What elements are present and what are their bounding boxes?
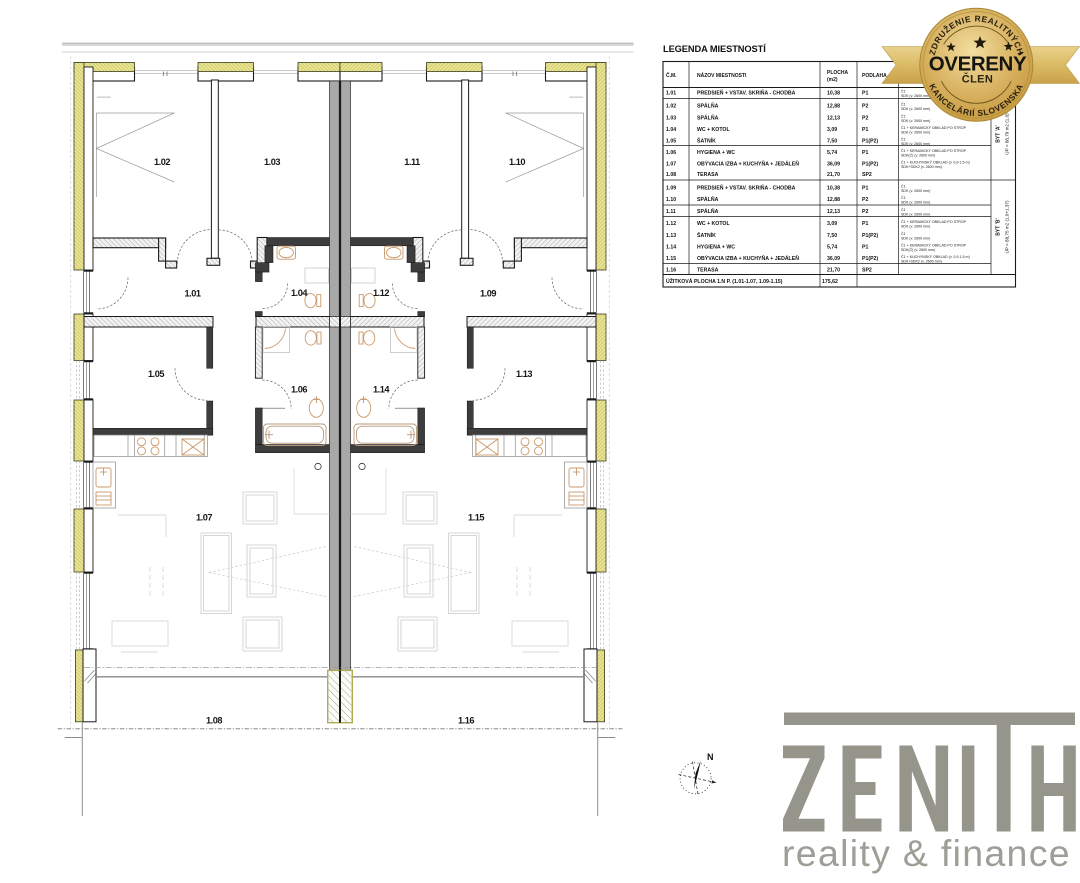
svg-text:1.14: 1.14 bbox=[666, 245, 676, 251]
svg-text:1.15: 1.15 bbox=[666, 256, 676, 262]
svg-text:ÚP = 88,79 m2 (1.0): ÚP = 88,79 m2 (1.0) bbox=[1004, 113, 1010, 155]
svg-text:1.06: 1.06 bbox=[291, 385, 307, 395]
svg-text:10,38: 10,38 bbox=[827, 185, 840, 191]
svg-text:1.04: 1.04 bbox=[291, 288, 308, 298]
svg-text:3,09: 3,09 bbox=[827, 127, 837, 133]
svg-text:Č1: Č1 bbox=[901, 195, 906, 200]
svg-text:ŠATNÍK: ŠATNÍK bbox=[697, 136, 716, 144]
svg-text:1.09: 1.09 bbox=[666, 185, 676, 191]
svg-text:21,70: 21,70 bbox=[827, 268, 840, 274]
svg-text:P1: P1 bbox=[862, 221, 868, 227]
svg-text:P2: P2 bbox=[862, 197, 868, 203]
svg-text:P1: P1 bbox=[862, 91, 868, 97]
svg-text:5,74: 5,74 bbox=[827, 150, 837, 156]
svg-text:36,09: 36,09 bbox=[827, 256, 840, 262]
svg-text:P1(P2): P1(P2) bbox=[862, 161, 878, 167]
svg-text:1.08: 1.08 bbox=[666, 172, 676, 178]
svg-text:SP2: SP2 bbox=[862, 172, 872, 178]
svg-text:BYT 'B': BYT 'B' bbox=[996, 218, 1002, 235]
svg-text:P2: P2 bbox=[862, 115, 868, 121]
svg-text:10,38: 10,38 bbox=[827, 91, 840, 97]
svg-text:SDK (v. 2600 mm): SDK (v. 2600 mm) bbox=[901, 107, 930, 111]
svg-text:TERASA: TERASA bbox=[697, 172, 719, 178]
svg-text:1.01: 1.01 bbox=[666, 91, 676, 97]
svg-text:SDK(Č) (v. 2600 mm): SDK(Č) (v. 2600 mm) bbox=[901, 152, 935, 157]
svg-text:SDK (v. 2600 mm): SDK (v. 2600 mm) bbox=[901, 94, 930, 98]
svg-text:Č1: Č1 bbox=[901, 183, 906, 188]
svg-text:Č1 + KUCHYNSKÝ OBKLAD (v. 0,9-: Č1 + KUCHYNSKÝ OBKLAD (v. 0,9-1,5 m) bbox=[901, 159, 970, 164]
svg-text:SDK (v. 2600 mm): SDK (v. 2600 mm) bbox=[901, 213, 930, 217]
svg-text:P1: P1 bbox=[862, 245, 868, 251]
svg-text:SDK (v. 2600 mm): SDK (v. 2600 mm) bbox=[901, 201, 930, 205]
svg-text:1.16: 1.16 bbox=[666, 268, 676, 274]
svg-text:SDK (v. 2600 mm): SDK (v. 2600 mm) bbox=[901, 236, 930, 240]
svg-text:SPÁLŇA: SPÁLŇA bbox=[697, 195, 719, 203]
svg-text:1.06: 1.06 bbox=[666, 150, 676, 156]
svg-text:3,09: 3,09 bbox=[827, 221, 837, 227]
svg-text:P1(P2): P1(P2) bbox=[862, 256, 878, 262]
svg-text:P1: P1 bbox=[862, 185, 868, 191]
svg-text:HYGIENA + WC: HYGIENA + WC bbox=[697, 150, 735, 156]
svg-text:Č1: Č1 bbox=[901, 136, 906, 141]
svg-text:SDK (v. 2600 mm): SDK (v. 2600 mm) bbox=[901, 131, 930, 135]
svg-text:Č1: Č1 bbox=[901, 207, 906, 212]
svg-text:Č1 + KUCHYNSKÝ OBKLAD (v. 0,9-: Č1 + KUCHYNSKÝ OBKLAD (v. 0,9-1,5 m) bbox=[901, 254, 970, 259]
svg-text:N: N bbox=[707, 752, 714, 762]
svg-text:SPÁLŇA: SPÁLŇA bbox=[697, 207, 719, 215]
svg-text:Č1 + KERAMICKÝ OBKLAD PO STROP: Č1 + KERAMICKÝ OBKLAD PO STROP bbox=[901, 125, 967, 130]
svg-text:P2: P2 bbox=[862, 209, 868, 215]
svg-text:1.12: 1.12 bbox=[373, 288, 389, 298]
svg-text:(m2): (m2) bbox=[827, 77, 838, 83]
svg-text:1.11: 1.11 bbox=[666, 209, 676, 215]
svg-text:ÚP = 88,75 m2 (1.0+1.37): ÚP = 88,75 m2 (1.0+1.37) bbox=[1004, 200, 1010, 254]
svg-text:Č1: Č1 bbox=[901, 231, 906, 236]
svg-text:1.12: 1.12 bbox=[666, 221, 676, 227]
svg-text:12,13: 12,13 bbox=[827, 209, 840, 215]
svg-text:reality & finance: reality & finance bbox=[782, 832, 1071, 874]
svg-text:1.10: 1.10 bbox=[666, 197, 676, 203]
svg-text:Č1 + KERAMICKÝ OBKLAD PO STROP: Č1 + KERAMICKÝ OBKLAD PO STROP bbox=[901, 243, 967, 248]
svg-text:1.09: 1.09 bbox=[480, 289, 496, 299]
svg-text:1.04: 1.04 bbox=[666, 127, 676, 133]
svg-text:7,50: 7,50 bbox=[827, 233, 837, 239]
svg-text:ČLEN: ČLEN bbox=[962, 73, 994, 86]
svg-text:21,70: 21,70 bbox=[827, 172, 840, 178]
svg-text:1.07: 1.07 bbox=[666, 161, 676, 167]
svg-text:WC + KOTOL: WC + KOTOL bbox=[697, 221, 730, 227]
svg-text:SDK (v. 2600 mm): SDK (v. 2600 mm) bbox=[901, 142, 930, 146]
svg-text:1.05: 1.05 bbox=[666, 138, 676, 144]
svg-text:Č1 + KERAMICKÝ OBKLAD PO STROP: Č1 + KERAMICKÝ OBKLAD PO STROP bbox=[901, 219, 967, 224]
svg-text:1.10: 1.10 bbox=[509, 157, 525, 167]
svg-text:1.02: 1.02 bbox=[154, 157, 170, 167]
svg-text:PLOCHA: PLOCHA bbox=[827, 70, 849, 76]
svg-text:1.13: 1.13 bbox=[666, 233, 676, 239]
svg-text:36,09: 36,09 bbox=[827, 161, 840, 167]
svg-text:12,88: 12,88 bbox=[827, 104, 840, 110]
svg-text:7,50: 7,50 bbox=[827, 138, 837, 144]
svg-text:1.01: 1.01 bbox=[184, 289, 200, 299]
svg-text:1.15: 1.15 bbox=[468, 513, 484, 523]
svg-text:12,13: 12,13 bbox=[827, 115, 840, 121]
svg-text:SDK+SDK2 (v. 2600 mm): SDK+SDK2 (v. 2600 mm) bbox=[901, 260, 942, 264]
svg-text:Č1: Č1 bbox=[901, 102, 906, 107]
svg-text:SDK (v. 2600 mm): SDK (v. 2600 mm) bbox=[901, 119, 930, 123]
svg-text:1.02: 1.02 bbox=[666, 104, 676, 110]
svg-text:SDK (v. 2600 mm): SDK (v. 2600 mm) bbox=[901, 225, 930, 229]
svg-text:P1: P1 bbox=[862, 150, 868, 156]
svg-text:LEGENDA MIESTNOSTÍ: LEGENDA MIESTNOSTÍ bbox=[663, 44, 766, 54]
svg-text:P1(P2): P1(P2) bbox=[862, 233, 878, 239]
svg-text:Č1 + KERAMICKÝ OBKLAD PO STROP: Č1 + KERAMICKÝ OBKLAD PO STROP bbox=[901, 148, 967, 153]
svg-text:1.13: 1.13 bbox=[516, 369, 532, 379]
svg-text:HYGIENA + WC: HYGIENA + WC bbox=[697, 245, 735, 251]
svg-text:OBÝVACIA IZBA + KUCHYŇA + JEDÁ: OBÝVACIA IZBA + KUCHYŇA + JEDÁLEŇ bbox=[697, 159, 799, 167]
svg-text:12,88: 12,88 bbox=[827, 197, 840, 203]
svg-text:PODLAHA: PODLAHA bbox=[862, 73, 887, 79]
svg-text:SP2: SP2 bbox=[862, 268, 872, 274]
svg-text:SPÁLŇA: SPÁLŇA bbox=[697, 113, 719, 121]
svg-text:1.11: 1.11 bbox=[404, 157, 420, 167]
svg-text:ŠATNÍK: ŠATNÍK bbox=[697, 231, 716, 239]
svg-text:SDK (v. 2600 mm): SDK (v. 2600 mm) bbox=[901, 189, 930, 193]
svg-text:PREDSIEŇ + VSTAV. SKRIŇA - CHO: PREDSIEŇ + VSTAV. SKRIŇA - CHODBA bbox=[697, 183, 796, 191]
svg-text:Č1: Č1 bbox=[901, 113, 906, 118]
svg-text:P2: P2 bbox=[862, 104, 868, 110]
svg-text:1.08: 1.08 bbox=[206, 716, 222, 726]
svg-text:175,62: 175,62 bbox=[822, 279, 838, 285]
svg-text:SDK+SDK2 (v. 2600 mm): SDK+SDK2 (v. 2600 mm) bbox=[901, 165, 942, 169]
svg-text:1.16: 1.16 bbox=[458, 716, 474, 726]
svg-text:Č.M.: Č.M. bbox=[666, 72, 677, 79]
svg-text:1.05: 1.05 bbox=[148, 369, 164, 379]
svg-text:1.03: 1.03 bbox=[666, 115, 676, 121]
svg-text:P1(P2): P1(P2) bbox=[862, 138, 878, 144]
svg-text:SPÁLŇA: SPÁLŇA bbox=[697, 102, 719, 110]
svg-text:Č1: Č1 bbox=[901, 89, 906, 94]
svg-text:1.14: 1.14 bbox=[373, 385, 390, 395]
svg-text:1.03: 1.03 bbox=[264, 157, 280, 167]
svg-text:ÚŽITKOVÁ PLOCHA 1.N P. (1.01-1: ÚŽITKOVÁ PLOCHA 1.N P. (1.01-1.07, 1.09-… bbox=[666, 277, 783, 285]
svg-text:WC + KOTOL: WC + KOTOL bbox=[697, 127, 730, 133]
svg-text:OVERENÝ: OVERENÝ bbox=[929, 52, 1027, 76]
svg-text:NÁZOV MIESTNOSTI: NÁZOV MIESTNOSTI bbox=[697, 72, 747, 79]
svg-text:BYT 'A': BYT 'A' bbox=[996, 125, 1002, 142]
svg-text:TERASA: TERASA bbox=[697, 268, 719, 274]
svg-text:P1: P1 bbox=[862, 127, 868, 133]
svg-text:PREDSIEŇ + VSTAV. SKRIŇA - CHO: PREDSIEŇ + VSTAV. SKRIŇA - CHODBA bbox=[697, 89, 796, 97]
svg-text:1.07: 1.07 bbox=[196, 513, 212, 523]
svg-text:SDK(Č) (v. 2600 mm): SDK(Č) (v. 2600 mm) bbox=[901, 247, 935, 252]
svg-text:5,74: 5,74 bbox=[827, 245, 837, 251]
svg-text:OBÝVACIA IZBA + KUCHYŇA + JEDÁ: OBÝVACIA IZBA + KUCHYŇA + JEDÁLEŇ bbox=[697, 254, 799, 262]
